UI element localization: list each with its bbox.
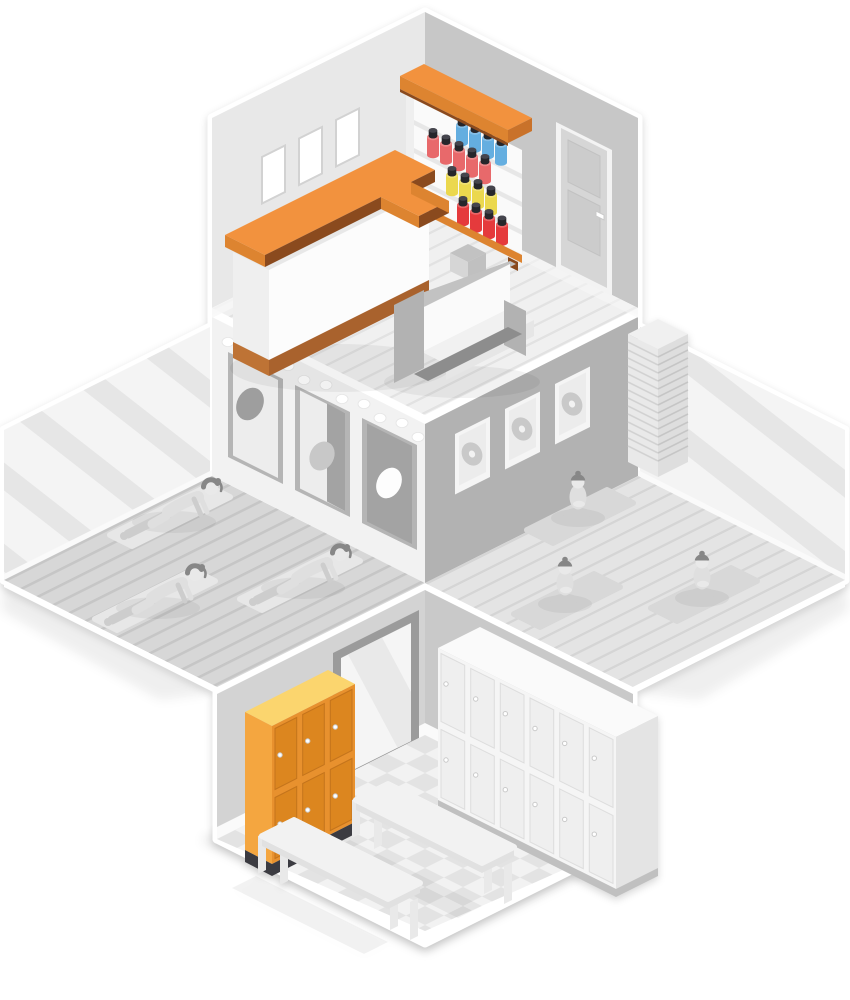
isometric-gym-illustration: Isometric fitness studio cutaway illustr… [0,0,850,1000]
wall-picture-1 [262,146,285,204]
sofa-arm-left [394,290,424,383]
entry-door [556,122,612,296]
wall-picture-2 [299,127,322,185]
wall-picture-3 [336,109,359,167]
illustration-stage: Isometric fitness studio cutaway illustr… [0,0,850,1000]
towel-stack [628,319,688,477]
